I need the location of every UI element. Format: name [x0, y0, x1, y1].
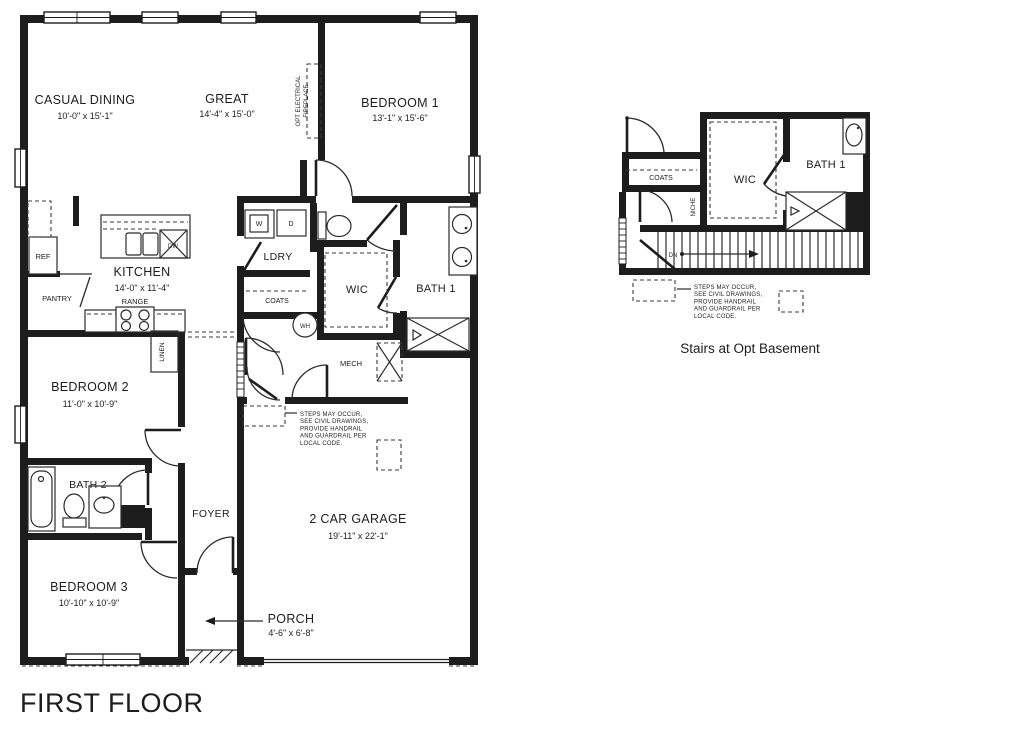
closet-details: [151, 64, 402, 470]
mech-label: MECH: [340, 359, 362, 368]
bedroom2-label: BEDROOM 2: [51, 380, 129, 394]
range: [116, 307, 154, 332]
detail-niche-label: NICHE: [691, 198, 697, 217]
refrigerator-label: REF: [36, 252, 51, 261]
svg-text:LOCAL CODE.: LOCAL CODE.: [300, 441, 342, 447]
porch-details: [186, 617, 263, 663]
steps-note-main-text: STEPS MAY OCCUR, SEE CIVIL DRAWINGS, PRO…: [300, 412, 369, 447]
window: [221, 12, 256, 23]
toilet: [318, 212, 351, 239]
range-label: RANGE: [122, 297, 149, 306]
window: [142, 12, 178, 23]
toilet: [63, 494, 86, 527]
window: [420, 12, 456, 23]
svg-text:PROVIDE HANDRAIL: PROVIDE HANDRAIL: [300, 426, 363, 432]
detail-down-label: DN: [669, 253, 678, 259]
double-vanity: [449, 207, 477, 275]
washer-label: W: [256, 221, 263, 228]
hatched-wall: [237, 342, 244, 397]
detail-coats-label: COATS: [649, 175, 673, 182]
steps-note-detail-text: STEPS MAY OCCUR, SEE CIVIL DRAWINGS, PRO…: [694, 285, 763, 320]
svg-text:AND GUARDRAIL PER: AND GUARDRAIL PER: [300, 434, 367, 440]
steps-note-main: [243, 406, 297, 426]
shower: [786, 192, 846, 230]
bath2-fixtures: [28, 467, 121, 531]
kitchen-dims: 14'-0" x 11'-4": [115, 283, 170, 293]
porch-arrow: [205, 617, 263, 625]
window: [15, 149, 26, 187]
bedroom1-label: BEDROOM 1: [361, 96, 439, 110]
laundry-label: LDRY: [263, 251, 292, 263]
svg-text:SEE CIVIL DRAWINGS,: SEE CIVIL DRAWINGS,: [300, 419, 369, 425]
svg-text:LOCAL CODE.: LOCAL CODE.: [694, 314, 736, 320]
window: [44, 12, 110, 23]
cabinet: [28, 201, 51, 237]
hatched-wall: [619, 218, 626, 264]
detail-bath1-label: BATH 1: [806, 159, 846, 171]
door: [764, 152, 786, 196]
svg-text:PROVIDE HANDRAIL: PROVIDE HANDRAIL: [694, 299, 757, 305]
svg-text:STEPS MAY OCCUR,: STEPS MAY OCCUR,: [300, 412, 362, 418]
door: [316, 160, 352, 196]
door: [141, 542, 177, 578]
bath2-label: BATH 2: [69, 479, 107, 491]
linen-label: LINEN: [159, 342, 166, 361]
bathtub: [28, 467, 55, 531]
plan-title: FIRST FLOOR: [20, 688, 204, 718]
door: [367, 205, 397, 251]
laundry-fixtures: [245, 210, 306, 238]
floor-plan-page: CASUAL DINING 10'-0" x 15'-1" GREAT 14'-…: [0, 0, 1024, 734]
door: [247, 367, 280, 400]
casual-dining-dims: 10'-0" x 15'-1": [57, 111, 112, 121]
dishwasher-label: DW: [168, 244, 178, 250]
window: [469, 156, 480, 193]
coats-label: COATS: [265, 298, 289, 305]
foyer-label: FOYER: [192, 508, 230, 520]
kitchen-label: KITCHEN: [114, 265, 171, 279]
door: [625, 116, 664, 152]
door: [292, 365, 327, 400]
dryer-label: D: [288, 221, 293, 228]
great-room-label: GREAT: [205, 92, 249, 106]
front-door: [197, 537, 233, 573]
svg-text:AND GUARDRAIL PER: AND GUARDRAIL PER: [694, 307, 761, 313]
basement-stairs-detail: [619, 112, 870, 312]
svg-text:STEPS MAY OCCUR,: STEPS MAY OCCUR,: [694, 285, 756, 291]
detail-wic-label: WIC: [734, 174, 756, 186]
water-heater-label: WH: [300, 324, 310, 330]
bath1-label: BATH 1: [416, 283, 456, 295]
sink: [843, 118, 866, 154]
fireplace-label-line2: FIREPLACE: [304, 84, 310, 117]
fireplace-label-line1: OPT ELECTRICAL: [296, 75, 302, 127]
bedroom3-dims: 10'-10" x 10'-9": [59, 598, 119, 608]
door: [246, 338, 283, 375]
garage-label: 2 CAR GARAGE: [309, 512, 406, 526]
porch-dims: 4'-6" x 6'-8": [268, 628, 313, 638]
stairs: [640, 232, 858, 270]
vanity: [89, 486, 121, 528]
svg-text:SEE CIVIL DRAWINGS,: SEE CIVIL DRAWINGS,: [694, 292, 763, 298]
door: [640, 190, 672, 222]
shower: [407, 318, 469, 351]
detail-caption: Stairs at Opt Basement: [680, 341, 820, 356]
wic-label: WIC: [346, 284, 368, 296]
great-room-dims: 14'-4" x 15'-0": [199, 109, 254, 119]
kitchen-island: [101, 215, 190, 258]
porch-label: PORCH: [268, 612, 315, 626]
bedroom3-label: BEDROOM 3: [50, 580, 128, 594]
pantry-label: PANTRY: [42, 294, 72, 303]
labels: CASUAL DINING 10'-0" x 15'-1" GREAT 14'-…: [20, 75, 846, 718]
door: [243, 242, 261, 272]
door: [243, 315, 280, 352]
down-arrow: [680, 250, 759, 258]
window: [66, 654, 140, 665]
casual-dining-label: CASUAL DINING: [35, 93, 136, 107]
window: [15, 406, 26, 443]
bedroom1-dims: 13'-1" x 15'-6": [372, 113, 427, 123]
bedroom2-dims: 11'-0" x 10'-9": [63, 399, 118, 409]
garage-dims: 19'-11" x 22'-1": [328, 531, 388, 541]
floor-plan-drawing: CASUAL DINING 10'-0" x 15'-1" GREAT 14'-…: [0, 0, 1024, 734]
